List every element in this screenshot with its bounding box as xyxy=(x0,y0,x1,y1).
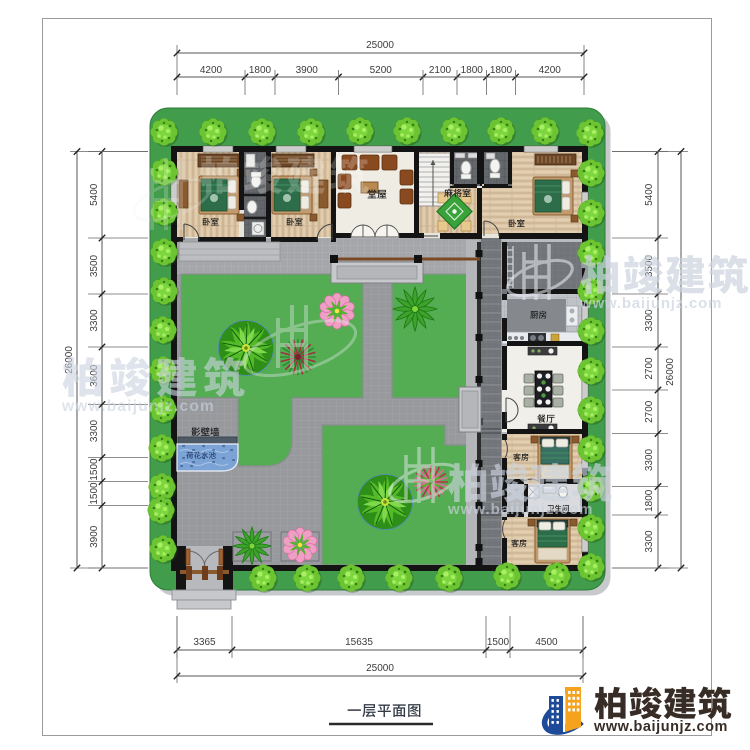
svg-text:3300: 3300 xyxy=(644,530,655,553)
svg-text:15635: 15635 xyxy=(345,637,373,648)
svg-text:≈: ≈ xyxy=(232,458,235,464)
svg-text:≈: ≈ xyxy=(202,444,205,450)
svg-text:3300: 3300 xyxy=(644,309,655,332)
svg-text:25000: 25000 xyxy=(366,663,394,674)
svg-text:≈: ≈ xyxy=(212,460,215,466)
svg-text:3900: 3900 xyxy=(296,65,319,76)
svg-text:26000: 26000 xyxy=(665,358,676,386)
svg-text:1500: 1500 xyxy=(89,482,100,505)
svg-text:1800: 1800 xyxy=(249,65,272,76)
svg-text:www.baijunjz.com: www.baijunjz.com xyxy=(579,295,722,312)
svg-text:1500: 1500 xyxy=(487,637,510,648)
svg-text:≈: ≈ xyxy=(222,444,225,450)
svg-text:2700: 2700 xyxy=(644,357,655,380)
svg-text:3365: 3365 xyxy=(193,637,216,648)
svg-text:3300: 3300 xyxy=(644,448,655,471)
svg-text:3900: 3900 xyxy=(89,525,100,548)
svg-text:≈: ≈ xyxy=(190,464,193,470)
svg-text:≈: ≈ xyxy=(182,444,185,450)
svg-text:1500: 1500 xyxy=(89,458,100,481)
svg-text:5400: 5400 xyxy=(644,183,655,206)
svg-text:2100: 2100 xyxy=(429,65,452,76)
svg-text:1800: 1800 xyxy=(490,65,513,76)
svg-text:3300: 3300 xyxy=(89,419,100,442)
svg-text:3500: 3500 xyxy=(89,254,100,277)
svg-text:25000: 25000 xyxy=(366,40,394,51)
svg-text:4500: 4500 xyxy=(535,637,558,648)
svg-text:4200: 4200 xyxy=(200,65,223,76)
svg-text:≈: ≈ xyxy=(222,456,225,462)
svg-text:1800: 1800 xyxy=(644,489,655,512)
svg-text:4200: 4200 xyxy=(539,65,562,76)
svg-text:www.baijunjz.com: www.baijunjz.com xyxy=(593,719,728,735)
svg-text:www.baijunjz.com: www.baijunjz.com xyxy=(61,398,215,415)
svg-text:5200: 5200 xyxy=(370,65,393,76)
svg-text:www.baijunjz.com: www.baijunjz.com xyxy=(447,501,593,518)
svg-text:3300: 3300 xyxy=(89,309,100,332)
svg-text:≈: ≈ xyxy=(180,464,183,470)
svg-text:1800: 1800 xyxy=(461,65,484,76)
svg-text:≈: ≈ xyxy=(230,448,233,454)
svg-text:2700: 2700 xyxy=(644,400,655,423)
svg-text:≈: ≈ xyxy=(182,456,185,462)
svg-text:5400: 5400 xyxy=(89,183,100,206)
